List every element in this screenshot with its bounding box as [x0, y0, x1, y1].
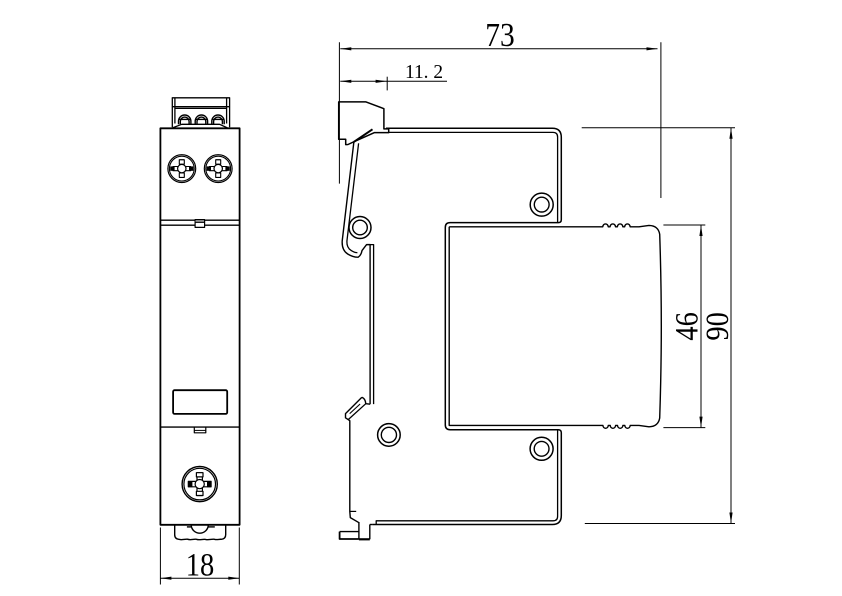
svg-text:73: 73	[485, 17, 515, 54]
svg-text:90: 90	[700, 312, 736, 341]
svg-text:18: 18	[186, 548, 215, 584]
svg-text:11. 2: 11. 2	[405, 61, 443, 83]
